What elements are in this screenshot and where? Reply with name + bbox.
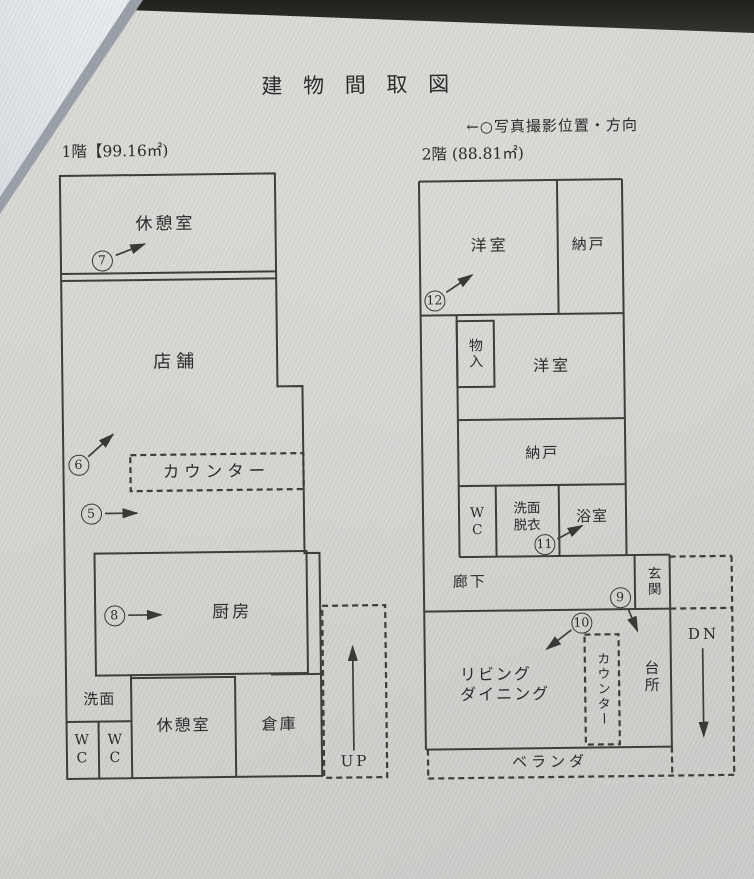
photo-marker-11: 11	[534, 533, 555, 554]
photo-marker-10: 10	[571, 612, 592, 633]
marker10-direction-arrow	[546, 630, 571, 649]
floor2-row3-bottom-wall	[459, 484, 626, 486]
floor2-top-wall	[419, 179, 622, 181]
stairs-dn-label: DN	[688, 625, 719, 644]
floor1-breakroom-wall-b	[61, 278, 276, 281]
photo-marker-12: 12	[424, 290, 445, 311]
floor2-row1-bottom-wall	[421, 313, 624, 315]
room-label-entrance: 玄関	[645, 566, 659, 597]
floor2-veranda-top-wall	[426, 747, 672, 750]
floor2-washroom-right-wall	[559, 485, 560, 556]
photo-marker-9-number: 9	[616, 591, 624, 604]
photo-marker-12-number: 12	[426, 294, 442, 307]
photo-marker-8: 8	[104, 605, 125, 626]
room-label-wc-right: W C	[107, 732, 122, 767]
photo-marker-5-number: 5	[87, 507, 95, 520]
room-label-breakroom-top: 休憩室	[135, 214, 195, 236]
floor2-row2-bottom-wall	[458, 418, 625, 420]
page-title: 建 物 間 取 図	[261, 71, 456, 100]
floor2-hallway-bottom-wall	[424, 609, 670, 612]
marker12-direction-arrow	[446, 275, 472, 292]
floor2-stairs-dashed-top	[670, 556, 732, 557]
photo-marker-6: 6	[68, 454, 89, 475]
floor1-washroom-right-wall	[131, 675, 132, 778]
photo-marker-10-number: 10	[573, 616, 589, 629]
floor2-kitchen-right-wall	[670, 609, 672, 747]
dn-arrow	[703, 648, 704, 736]
photo-marker-6-number: 6	[74, 459, 82, 472]
floor1-breakroom-wall-a	[61, 271, 276, 274]
room-label-shop: 店舗	[153, 351, 199, 374]
marker9-direction-arrow	[628, 609, 637, 631]
photo-marker-8-number: 8	[110, 609, 118, 622]
floor2-stairs-dashed-right	[732, 556, 735, 775]
room-label-western2: 洋室	[533, 356, 571, 376]
marker7-direction-arrow	[116, 244, 145, 255]
floor2-left-wall	[419, 182, 426, 750]
room-label-living-dining: リビング ダイニング	[460, 664, 550, 705]
room-label-western1: 洋室	[471, 236, 509, 256]
room-label-veranda: ベランダ	[512, 752, 588, 772]
floor2-wc-right-wall	[496, 486, 497, 557]
floor2-entrance-left-wall	[635, 555, 636, 609]
floor2-room1-divider	[557, 180, 559, 314]
floor2-right-wall	[622, 179, 627, 555]
room-label-bathroom: 浴室	[576, 507, 608, 526]
marker6-direction-arrow	[88, 434, 113, 456]
photographed-floorplan-sheet: 建 物 間 取 図 ←○写真撮影位置・方向 1階【99.16㎡) 2階 (88.…	[0, 0, 754, 879]
room-label-counter-2f: カウンター	[595, 652, 609, 727]
room-label-kitchen-1f: 厨房	[212, 602, 252, 624]
room-label-closet2: 納戸	[525, 444, 559, 463]
photo-marker-7-number: 7	[98, 254, 106, 267]
floor2-hallway-top-wall	[460, 555, 670, 558]
floor1-wc-divider-wall	[99, 722, 100, 779]
room-label-closet1: 納戸	[572, 235, 606, 254]
floorplan-document: 建 物 間 取 図 ←○写真撮影位置・方向 1階【99.16㎡) 2階 (88.…	[0, 0, 754, 879]
room-label-wc-2f: W C	[470, 505, 484, 539]
photo-marker-11-number: 11	[536, 538, 552, 551]
floor1-heading: 1階【99.16㎡)	[61, 139, 168, 162]
room-label-hallway: 廊下	[453, 572, 487, 591]
floor2-heading: 2階 (88.81㎡)	[421, 141, 524, 164]
room-label-counter-1f: カウンター	[163, 461, 271, 483]
photo-marker-7: 7	[91, 250, 112, 271]
room-label-washroom-1f: 洗面	[83, 690, 115, 709]
photo-marker-5: 5	[80, 503, 101, 524]
floor2-stairs-dashed-inner	[670, 608, 732, 609]
stairs-up-label: UP	[341, 752, 370, 771]
up-arrow	[353, 646, 354, 750]
floor1-kitchen-walls	[94, 551, 307, 676]
floor1-warehouse-top-wall	[271, 674, 321, 675]
room-label-washroom-dressing: 洗面 脱衣	[513, 500, 540, 534]
photo-marker-9: 9	[609, 587, 630, 608]
room-label-kitchen-2f: 台所	[643, 660, 658, 694]
room-label-wc-left: W C	[74, 732, 89, 767]
photo-position-legend: ←○写真撮影位置・方向	[466, 114, 638, 137]
room-label-warehouse: 倉庫	[261, 714, 297, 734]
marker11-direction-arrow	[557, 526, 582, 539]
room-label-breakroom-bottom: 休憩室	[156, 715, 210, 736]
floor2-veranda-dashed-bottom	[428, 775, 734, 779]
room-label-storagein: 物入	[468, 338, 482, 370]
floor2-entrance-right-wall	[670, 555, 671, 609]
